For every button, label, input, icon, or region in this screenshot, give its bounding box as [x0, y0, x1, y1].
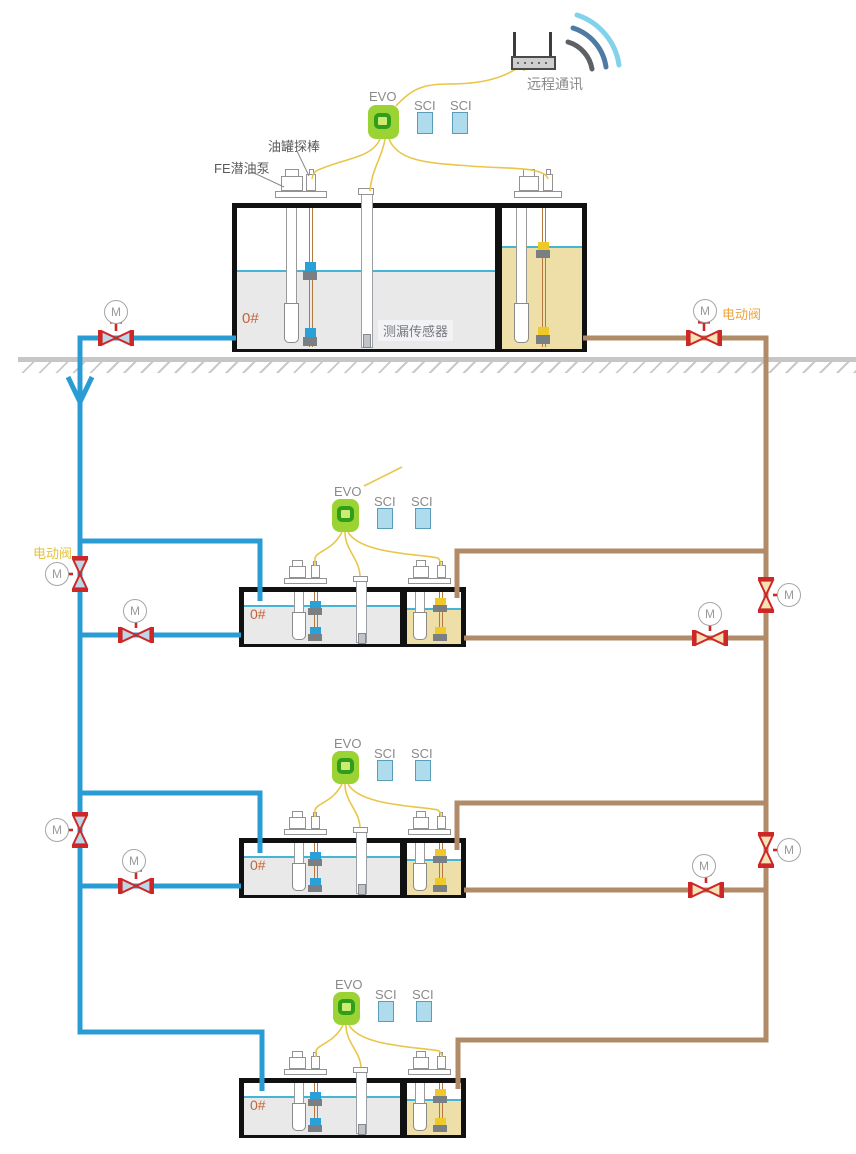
wire-evo2-left-probe: [315, 532, 342, 566]
sci1b-module: [452, 112, 468, 134]
sci3b-module: [415, 760, 431, 781]
evo2-screen: [337, 506, 354, 522]
motor-letter: M: [130, 604, 140, 618]
motor-letter: M: [52, 567, 62, 581]
evo2-console: [332, 499, 359, 532]
motor-l3-diesel-main: M: [45, 818, 69, 842]
sci3b-label: SCI: [411, 746, 433, 761]
motor-l2-diesel-suction: M: [123, 599, 147, 623]
sci4a-module: [378, 1001, 394, 1022]
router-leds: [517, 62, 550, 64]
wire-evo1-left-probe: [312, 139, 380, 179]
diesel-branch-l3-fill: [80, 793, 260, 853]
evo4-label: EVO: [335, 977, 362, 992]
evo1-console: [368, 105, 399, 139]
evo2-label: EVO: [334, 484, 361, 499]
pump-annotation: FE潜油泵: [214, 158, 270, 177]
valve-l1-gasoline: [684, 318, 724, 358]
diesel-main-pipe: [80, 338, 262, 1091]
router-antenna-left: [513, 32, 516, 58]
evo4-console: [333, 992, 360, 1025]
motor-l3-gasoline-main: M: [777, 838, 801, 862]
evo3-label: EVO: [334, 736, 361, 751]
sci1a-label: SCI: [414, 98, 436, 113]
motor-letter: M: [52, 823, 62, 837]
motor-l3-gasoline-suction: M: [692, 854, 716, 878]
motor-l3-diesel-suction: M: [122, 849, 146, 873]
sci2b-label: SCI: [411, 494, 433, 509]
motor-letter: M: [111, 305, 121, 319]
wire-evo2-right-probe: [348, 532, 441, 566]
sci1b-label: SCI: [450, 98, 472, 113]
wire-evo4-right-probe: [349, 1025, 442, 1057]
sci3a-module: [377, 760, 393, 781]
wire-evo3-left-probe: [315, 784, 342, 817]
evo4-screen: [338, 999, 355, 1015]
wifi-arc-inner: [568, 42, 592, 69]
sci2a-module: [377, 508, 393, 529]
sci4b-module: [416, 1001, 432, 1022]
pipe-layer: [0, 0, 856, 1154]
motor-letter: M: [699, 859, 709, 873]
motor-letter: M: [129, 854, 139, 868]
valve-l1-diesel: [96, 318, 136, 358]
motor-l2-gasoline-main: M: [777, 583, 801, 607]
gasoline-branch-l3-fill: [457, 803, 766, 850]
motor-l2-gasoline-suction: M: [698, 602, 722, 626]
gasoline-branch-l2-fill: [457, 551, 766, 598]
evo3-screen: [337, 758, 354, 774]
motor-letter: M: [705, 607, 715, 621]
sci4b-label: SCI: [412, 987, 434, 1002]
probe-annotation: 油罐探棒: [268, 136, 320, 155]
motor-letter: M: [700, 304, 710, 318]
wire-evo1-leak-sensor: [370, 139, 385, 191]
motor-l1-gasoline: M: [693, 299, 717, 323]
router-antenna-right: [549, 32, 552, 58]
gasoline-main-pipe: [458, 338, 766, 1089]
motor-letter: M: [784, 843, 794, 857]
motor-l1-diesel: M: [104, 300, 128, 324]
evo3-console: [332, 751, 359, 784]
remote-comm-label: 远程通讯: [527, 74, 583, 94]
sci3a-label: SCI: [374, 746, 396, 761]
sci1a-module: [417, 112, 433, 134]
wire-evo3-right-probe: [348, 784, 441, 817]
diesel-branch-l2-fill: [80, 541, 260, 601]
electric-valve-label-top: 电动阀: [722, 304, 761, 323]
wire-evo4-left-probe: [316, 1025, 343, 1057]
fuel-station-monitoring-diagram: 远程通讯 EVO SCI SCI FE潜油泵 油罐探棒 0: [0, 0, 856, 1154]
sci2a-label: SCI: [374, 494, 396, 509]
sci2b-module: [415, 508, 431, 529]
wire-evo1-right-probe: [389, 139, 548, 179]
wire-evo2-uplink: [364, 467, 402, 486]
motor-letter: M: [784, 588, 794, 602]
wifi-arc-outer: [577, 15, 619, 65]
sci4a-label: SCI: [375, 987, 397, 1002]
motor-l2-diesel-main: M: [45, 562, 69, 586]
evo1-screen: [374, 113, 391, 129]
evo1-label: EVO: [369, 89, 396, 104]
electric-valve-label-l2: 电动阀: [33, 543, 72, 562]
